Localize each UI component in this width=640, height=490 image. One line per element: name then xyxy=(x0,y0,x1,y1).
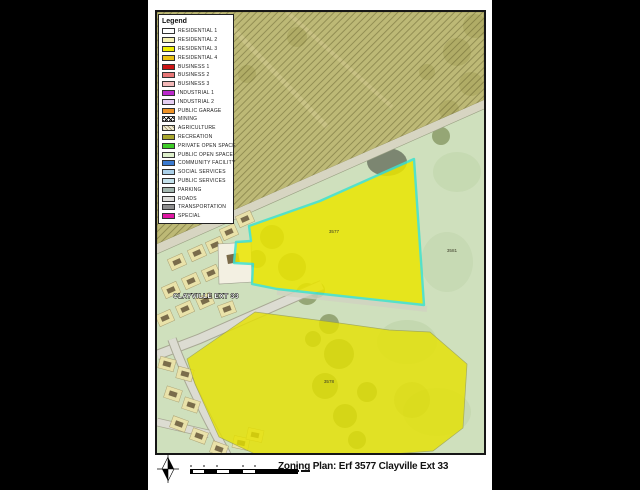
legend-item: RESIDENTIAL 4 xyxy=(162,53,230,62)
legend-item-label: MINING xyxy=(178,116,197,122)
legend-item: SOCIAL SERVICES xyxy=(162,168,230,177)
legend-item-label: RECREATION xyxy=(178,134,212,140)
map-title: Zoning Plan: Erf 3577 Clayville Ext 33 xyxy=(278,461,448,472)
legend-swatch xyxy=(162,108,175,114)
legend-swatch xyxy=(162,178,175,184)
legend-item: MINING xyxy=(162,115,230,124)
legend-item-label: PRIVATE OPEN SPACE xyxy=(178,143,236,149)
legend-item-label: AGRICULTURE xyxy=(178,125,216,131)
township-label: CLAYVILLE EXT 33 xyxy=(173,293,239,300)
legend-swatch xyxy=(162,204,175,210)
legend-swatch xyxy=(162,169,175,175)
legend-swatch xyxy=(162,143,175,149)
map-sheet: 357735783581CLAYVILLE EXT 33 Legend RESI… xyxy=(148,0,492,490)
legend-item-label: SPECIAL xyxy=(178,213,201,219)
parcel-number-label: 3578 xyxy=(324,379,335,384)
legend-swatch xyxy=(162,99,175,105)
legend-item: BUSINESS 1 xyxy=(162,62,230,71)
legend-item-label: PUBLIC SERVICES xyxy=(178,178,226,184)
legend-swatch xyxy=(162,37,175,43)
parcel-number-label: 3577 xyxy=(329,229,340,234)
legend-item: TRANSPORTATION xyxy=(162,203,230,212)
legend-item: SPECIAL xyxy=(162,212,230,221)
legend-item-label: PARKING xyxy=(178,187,202,193)
legend-item-label: RESIDENTIAL 1 xyxy=(178,28,217,34)
legend-title: Legend xyxy=(162,18,230,25)
legend-swatch xyxy=(162,152,175,158)
legend-swatch xyxy=(162,160,175,166)
legend-swatch xyxy=(162,81,175,87)
legend-item-label: RESIDENTIAL 3 xyxy=(178,46,217,52)
legend-swatch xyxy=(162,90,175,96)
legend-swatch xyxy=(162,28,175,34)
legend-item-label: PUBLIC GARAGE xyxy=(178,108,221,114)
parcel-number-label: 3581 xyxy=(447,248,458,253)
legend-item-label: INDUSTRIAL 1 xyxy=(178,90,214,96)
legend-item-label: COMMUNITY FACILITY xyxy=(178,160,235,166)
legend-item: COMMUNITY FACILITY xyxy=(162,159,230,168)
legend-swatch xyxy=(162,116,175,122)
legend-item-label: RESIDENTIAL 4 xyxy=(178,55,217,61)
legend-item: AGRICULTURE xyxy=(162,124,230,133)
legend-swatch xyxy=(162,187,175,193)
legend-item: PRIVATE OPEN SPACE xyxy=(162,141,230,150)
legend-item-label: BUSINESS 3 xyxy=(178,81,209,87)
legend-swatch xyxy=(162,72,175,78)
screenshot-canvas: { "window": { "background": "#000000" },… xyxy=(0,0,640,490)
legend-item-label: SOCIAL SERVICES xyxy=(178,169,226,175)
legend-item-label: RESIDENTIAL 2 xyxy=(178,37,217,43)
legend-item-label: TRANSPORTATION xyxy=(178,204,226,210)
legend-item: RESIDENTIAL 1 xyxy=(162,27,230,36)
north-arrow-icon xyxy=(154,452,182,486)
legend-item: BUSINESS 3 xyxy=(162,80,230,89)
legend-item: RESIDENTIAL 2 xyxy=(162,36,230,45)
legend-item: BUSINESS 2 xyxy=(162,71,230,80)
legend-item: PUBLIC SERVICES xyxy=(162,177,230,186)
legend-item: PARKING xyxy=(162,185,230,194)
legend-swatch xyxy=(162,134,175,140)
map-legend: Legend RESIDENTIAL 1RESIDENTIAL 2RESIDEN… xyxy=(158,14,234,224)
legend-item-label: INDUSTRIAL 2 xyxy=(178,99,214,105)
legend-item-label: PUBLIC OPEN SPACE xyxy=(178,152,233,158)
legend-item: PUBLIC GARAGE xyxy=(162,106,230,115)
legend-item: INDUSTRIAL 1 xyxy=(162,89,230,98)
legend-item-label: ROADS xyxy=(178,196,197,202)
legend-swatch xyxy=(162,196,175,202)
legend-swatch xyxy=(162,55,175,61)
legend-item: RESIDENTIAL 3 xyxy=(162,45,230,54)
legend-item: INDUSTRIAL 2 xyxy=(162,97,230,106)
legend-swatch xyxy=(162,213,175,219)
legend-item: ROADS xyxy=(162,194,230,203)
legend-swatch xyxy=(162,46,175,52)
legend-item: RECREATION xyxy=(162,133,230,142)
legend-item-label: BUSINESS 2 xyxy=(178,72,209,78)
legend-swatch xyxy=(162,64,175,70)
legend-item-label: BUSINESS 1 xyxy=(178,64,209,70)
legend-item: PUBLIC OPEN SPACE xyxy=(162,150,230,159)
legend-swatch xyxy=(162,125,175,131)
